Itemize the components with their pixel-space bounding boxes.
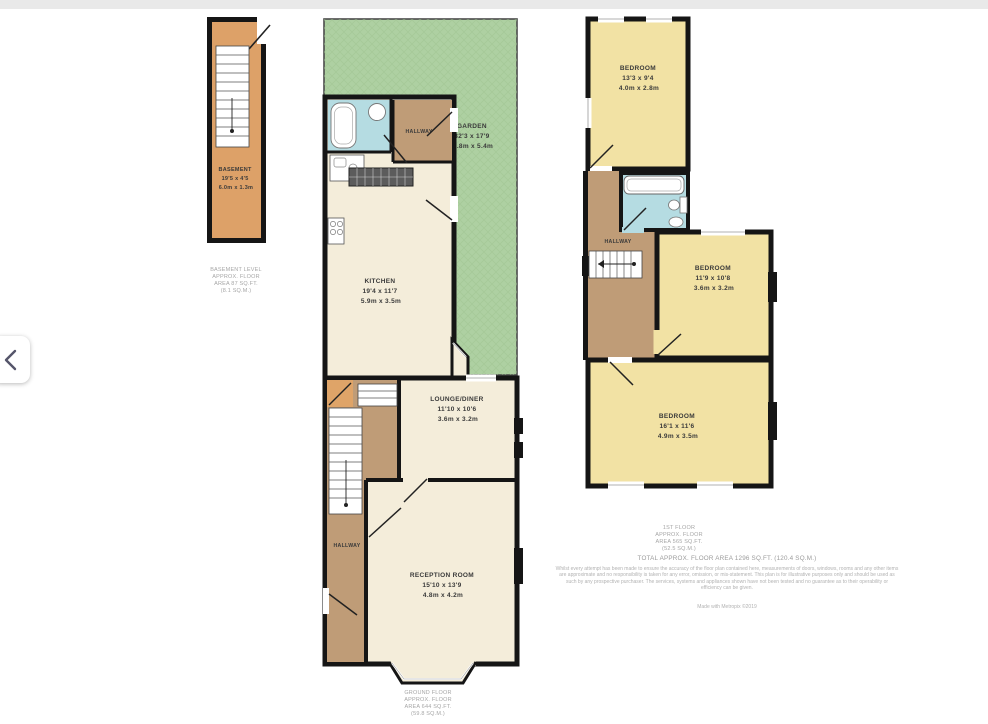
door-gap xyxy=(450,196,458,222)
bedroom2-label: BEDROOM 11'9 x 10'8 3.6m x 3.2m xyxy=(694,265,734,292)
basement-caption-line3: AREA 87 SQ.FT. xyxy=(176,281,296,288)
reception-metric: 4.8m x 4.2m xyxy=(423,592,463,599)
basement-metric: 6.0m x 1.3m xyxy=(219,185,254,191)
reception-name: RECEPTION ROOM xyxy=(410,572,474,579)
bedroom2-imperial: 11'9 x 10'8 xyxy=(695,275,730,282)
room-bedroom1 xyxy=(588,19,688,169)
bathtub-icon xyxy=(624,176,684,194)
kitchen-sink-counter-icon xyxy=(349,168,413,186)
kitchen-label: KITCHEN 19'4 x 11'7 5.9m x 3.5m xyxy=(361,278,401,305)
window-block xyxy=(514,548,523,584)
basement-stairs-icon xyxy=(216,46,249,147)
floorplan-viewer: BASEMENT 19'5 x 4'5 6.0m x 1.3m GARDEN 3… xyxy=(0,0,988,724)
lounge-label: LOUNGE/DINER 11'10 x 10'6 3.6m x 3.2m xyxy=(430,396,486,423)
sink-icon xyxy=(669,217,683,227)
basement-name: BASEMENT xyxy=(218,167,252,173)
reception-imperial: 15'10 x 13'9 xyxy=(422,582,461,589)
lounge-metric: 3.6m x 3.2m xyxy=(438,416,478,423)
basement-caption: BASEMENT LEVEL APPROX. FLOOR AREA 87 SQ.… xyxy=(176,267,296,295)
bedroom1-imperial: 13'3 x 9'4 xyxy=(622,75,653,82)
room-bedroom2 xyxy=(657,232,771,358)
door-gap xyxy=(654,330,660,354)
lounge-name: LOUNGE/DINER xyxy=(430,396,483,403)
disclaimer-text: Whilst every attempt has been made to en… xyxy=(555,566,899,591)
door-gap xyxy=(323,588,329,614)
ground-caption: GROUND FLOOR APPROX. FLOOR AREA 644 SQ.F… xyxy=(348,690,508,718)
plan-first: BEDROOM 13'3 x 9'4 4.0m x 2.8m HALLWAY xyxy=(582,16,777,489)
plan-basement: BASEMENT 19'5 x 4'5 6.0m x 1.3m xyxy=(210,16,271,241)
first-caption: 1ST FLOOR APPROX. FLOOR AREA 565 SQ.FT. … xyxy=(589,525,769,553)
garden-name: GARDEN xyxy=(457,123,487,130)
kitchen-metric: 5.9m x 3.5m xyxy=(361,298,401,305)
first-caption-line2: APPROX. FLOOR xyxy=(589,532,769,539)
basement-imperial: 19'5 x 4'5 xyxy=(222,176,249,182)
first-stairs-icon xyxy=(589,251,642,278)
door-gap xyxy=(608,357,632,363)
total-area-line: TOTAL APPROX. FLOOR AREA 1296 SQ.FT. (12… xyxy=(555,555,899,562)
bedroom1-metric: 4.0m x 2.8m xyxy=(619,85,659,92)
first-caption-line4: (52.5 SQ.M.) xyxy=(589,546,769,553)
ground-caption-line1: GROUND FLOOR xyxy=(348,690,508,697)
window-block xyxy=(768,272,777,302)
ground-caption-line2: APPROX. FLOOR xyxy=(348,697,508,704)
bay-window xyxy=(389,658,476,683)
bedroom3-label: BEDROOM 16'1 x 11'6 4.9m x 3.5m xyxy=(658,413,698,440)
garden-imperial: 32'3 x 17'9 xyxy=(454,133,489,140)
window-block xyxy=(582,256,589,276)
bedroom2-metric: 3.6m x 3.2m xyxy=(694,285,734,292)
ground-hallway-name: HALLWAY xyxy=(334,543,361,549)
window-block xyxy=(514,418,523,434)
kitchen-imperial: 19'4 x 11'7 xyxy=(362,288,397,295)
basement-caption-line1: BASEMENT LEVEL xyxy=(176,267,296,274)
bedroom3-metric: 4.9m x 3.5m xyxy=(658,433,698,440)
window-block xyxy=(768,402,777,440)
plan-ground: GARDEN 32'3 x 17'9 9.8m x 5.4m xyxy=(323,19,523,683)
first-hallway-name: HALLWAY xyxy=(605,239,632,245)
bedroom3-name: BEDROOM xyxy=(659,413,695,420)
first-hallway-label: HALLWAY xyxy=(605,239,632,245)
bedroom1-label: BEDROOM 13'3 x 9'4 4.0m x 2.8m xyxy=(619,65,659,92)
metropix-credit: Made with Metropix ©2019 xyxy=(555,604,899,610)
ground-caption-line3: AREA 644 SQ.FT. xyxy=(348,704,508,711)
sink-icon xyxy=(369,104,386,121)
bedroom1-name: BEDROOM xyxy=(620,65,656,72)
floorplan-image: BASEMENT 19'5 x 4'5 6.0m x 1.3m GARDEN 3… xyxy=(0,0,988,724)
basement-caption-line2: APPROX. FLOOR xyxy=(176,274,296,281)
basement-label: BASEMENT 19'5 x 4'5 6.0m x 1.3m xyxy=(218,167,253,191)
kitchen-name: KITCHEN xyxy=(364,278,395,285)
door-gap xyxy=(450,108,458,132)
first-caption-line1: 1ST FLOOR xyxy=(589,525,769,532)
garden-label: GARDEN 32'3 x 17'9 9.8m x 5.4m xyxy=(453,123,493,150)
ground-caption-line4: (59.8 SQ.M.) xyxy=(348,711,508,718)
basement-caption-line4: (8.1 SQ.M.) xyxy=(176,288,296,295)
first-caption-line3: AREA 565 SQ.FT. xyxy=(589,539,769,546)
window-block xyxy=(514,442,523,458)
ground-hallway-label: HALLWAY xyxy=(334,543,361,549)
lounge-imperial: 11'10 x 10'6 xyxy=(438,406,477,413)
bathtub-icon xyxy=(331,103,356,148)
garden-metric: 9.8m x 5.4m xyxy=(453,143,493,150)
bedroom2-name: BEDROOM xyxy=(695,265,731,272)
bedroom3-imperial: 16'1 x 11'6 xyxy=(659,423,694,430)
stove-icon xyxy=(328,218,344,244)
